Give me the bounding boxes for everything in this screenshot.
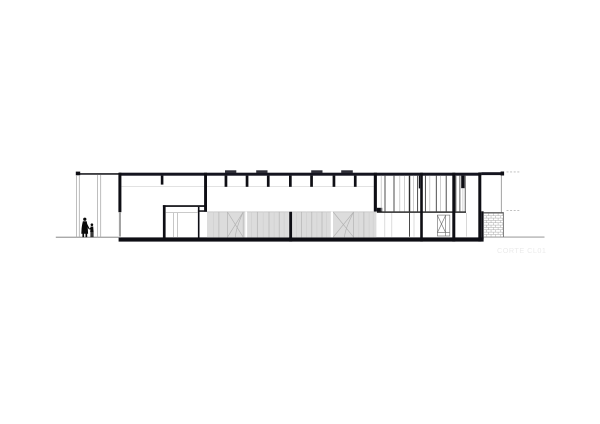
svg-text:CORTE CL01: CORTE CL01 [497, 246, 546, 255]
